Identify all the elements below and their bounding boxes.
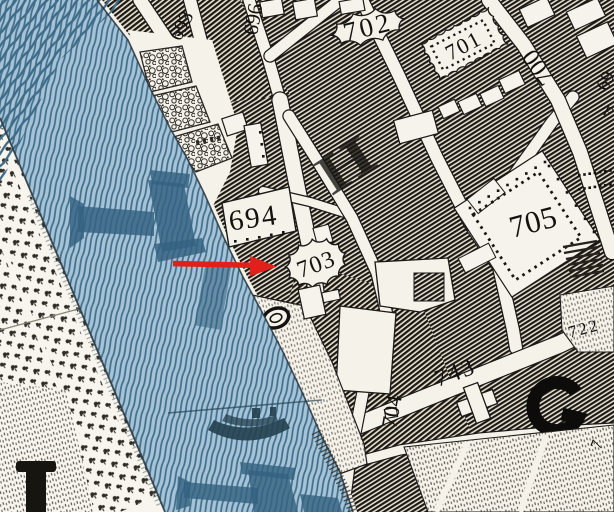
svg-text:694: 694 — [227, 199, 280, 238]
